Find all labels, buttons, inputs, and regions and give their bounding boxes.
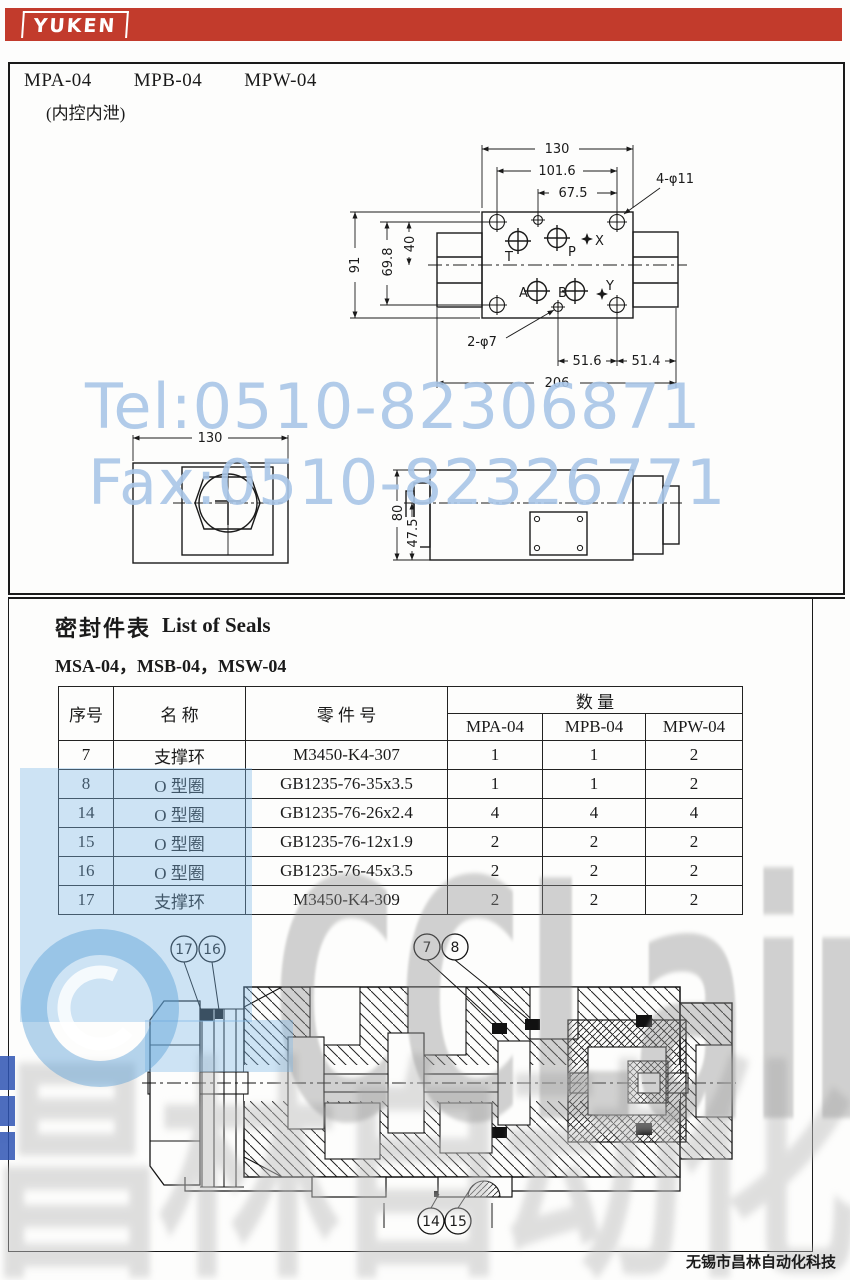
- col-header-no: 序号: [59, 687, 114, 741]
- cross-section-drawing: 17 16 7 8 14 15: [140, 925, 740, 1235]
- col-header-qty: 数 量: [448, 687, 743, 714]
- cell-name: 支撑环: [114, 741, 246, 770]
- dim-label: 130: [198, 431, 223, 446]
- cell-name: O 型圈: [114, 857, 246, 886]
- cell-qty: 2: [646, 741, 743, 770]
- model-subtitle: (内控内泄): [46, 99, 125, 124]
- dim-label: 51.4: [632, 354, 661, 369]
- cell-qty: 4: [646, 799, 743, 828]
- cell-no: 16: [59, 857, 114, 886]
- cell-part: GB1235-76-35x3.5: [246, 770, 448, 799]
- cell-qty: 1: [543, 770, 646, 799]
- plug-slot-mark: [215, 501, 241, 525]
- model-code: MPW-04: [244, 70, 317, 91]
- cell-qty: 2: [448, 886, 543, 915]
- cell-qty: 2: [646, 857, 743, 886]
- dim-label: 206: [545, 376, 570, 391]
- callout-16: 16: [203, 942, 221, 958]
- cell-qty: 2: [646, 886, 743, 915]
- cell-name: O 型圈: [114, 828, 246, 857]
- callout-14: 14: [422, 1214, 440, 1230]
- datasheet-page: YUKEN MPA-04MPB-04MPW-04 (内控内泄): [0, 0, 850, 1280]
- model-code: MPA-04: [24, 70, 92, 91]
- dim-label: 91: [348, 257, 363, 274]
- dim-label: 130: [545, 142, 570, 157]
- col-header-mpw: MPW-04: [646, 714, 743, 741]
- model-code: MPB-04: [134, 70, 202, 91]
- cell-no: 7: [59, 741, 114, 770]
- callout-8: 8: [451, 940, 460, 956]
- cell-qty: 1: [448, 770, 543, 799]
- cell-no: 14: [59, 799, 114, 828]
- port-labels: T P X A B Y: [504, 234, 614, 301]
- dimension-lines: [355, 149, 676, 383]
- table-row: 17 支撑环 M3450-K4-309 2 2 2: [59, 886, 743, 915]
- cell-qty: 2: [646, 770, 743, 799]
- dimension-labels: 130 101.6 67.5 91 69.8 40 51.6 51.4 206 …: [347, 142, 694, 391]
- callout-15: 15: [449, 1214, 467, 1230]
- port-label-t: T: [504, 250, 513, 265]
- cell-no: 17: [59, 886, 114, 915]
- cell-qty: 2: [646, 828, 743, 857]
- dim-label: 80: [391, 505, 406, 522]
- cell-part: M3450-K4-309: [246, 886, 448, 915]
- dim-label: 101.6: [538, 164, 575, 179]
- port-label-y: Y: [605, 279, 614, 294]
- cell-qty: 2: [543, 886, 646, 915]
- table-row: 8 O 型圈 GB1235-76-35x3.5 1 1 2: [59, 770, 743, 799]
- seals-title-cn: 密封件表: [55, 611, 151, 643]
- table-row: 14 O 型圈 GB1235-76-26x2.4 4 4 4: [59, 799, 743, 828]
- cell-qty: 4: [448, 799, 543, 828]
- cell-no: 15: [59, 828, 114, 857]
- cell-name: 支撑环: [114, 886, 246, 915]
- cell-part: GB1235-76-12x1.9: [246, 828, 448, 857]
- cell-qty: 1: [543, 741, 646, 770]
- top-view-drawing: T P X A B Y 130: [330, 140, 730, 395]
- brand-bar: YUKEN: [5, 8, 842, 41]
- col-header-name: 名 称: [114, 687, 246, 741]
- callout-17: 17: [175, 942, 193, 958]
- dim-label-holes-bottom: 2-φ7: [467, 335, 497, 350]
- cell-part: GB1235-76-45x3.5: [246, 857, 448, 886]
- table-header-row: 序号 名 称 零 件 号 数 量: [59, 687, 743, 714]
- dim-label-holes-top: 4-φ11: [656, 172, 694, 187]
- col-header-part: 零 件 号: [246, 687, 448, 741]
- side-view-drawing: 80 47.5: [385, 445, 695, 575]
- side-view-outline: [406, 470, 679, 560]
- end-nut: [150, 1001, 200, 1185]
- model-codes: MPA-04MPB-04MPW-04: [24, 70, 359, 92]
- table-row: 16 O 型圈 GB1235-76-45x3.5 2 2 2: [59, 857, 743, 886]
- col-header-mpa: MPA-04: [448, 714, 543, 741]
- port-label-a: A: [519, 286, 528, 301]
- port-label-b: B: [558, 286, 567, 301]
- dim-label: 69.8: [381, 248, 396, 277]
- port-label-p: P: [568, 245, 576, 260]
- bolt-holes: [534, 516, 582, 550]
- cell-qty: 1: [448, 741, 543, 770]
- end-view-outline: [133, 463, 288, 563]
- cell-qty: 2: [543, 828, 646, 857]
- cell-name: O 型圈: [114, 770, 246, 799]
- port-label-x: X: [595, 234, 604, 249]
- table-row: 7 支撑环 M3450-K4-307 1 1 2: [59, 741, 743, 770]
- cell-qty: 2: [448, 857, 543, 886]
- seals-title-en: List of Seals: [162, 613, 271, 638]
- cell-name: O 型圈: [114, 799, 246, 828]
- seals-table: 序号 名 称 零 件 号 数 量 MPA-04 MPB-04 MPW-04 7 …: [58, 686, 743, 915]
- end-view-drawing: 130: [115, 425, 305, 570]
- cell-qty: 4: [543, 799, 646, 828]
- footer-company: 无锡市昌林自动化科技: [686, 1251, 836, 1272]
- extension-lines: [350, 145, 676, 388]
- callout-7: 7: [423, 940, 432, 956]
- cell-qty: 2: [543, 857, 646, 886]
- yuken-logo: YUKEN: [21, 11, 129, 38]
- dim-label: 47.5: [406, 519, 421, 548]
- dim-label: 67.5: [559, 186, 588, 201]
- bottom-skirt: [185, 1177, 680, 1191]
- cell-no: 8: [59, 770, 114, 799]
- cell-part: M3450-K4-307: [246, 741, 448, 770]
- cell-qty: 2: [448, 828, 543, 857]
- washer-stack: [200, 1009, 244, 1187]
- seals-models-line: MSA-04，MSB-04，MSW-04: [55, 652, 286, 678]
- col-header-mpb: MPB-04: [543, 714, 646, 741]
- dim-label: 51.6: [573, 354, 602, 369]
- table-row: 15 O 型圈 GB1235-76-12x1.9 2 2 2: [59, 828, 743, 857]
- cell-part: GB1235-76-26x2.4: [246, 799, 448, 828]
- dim-label: 40: [403, 236, 418, 253]
